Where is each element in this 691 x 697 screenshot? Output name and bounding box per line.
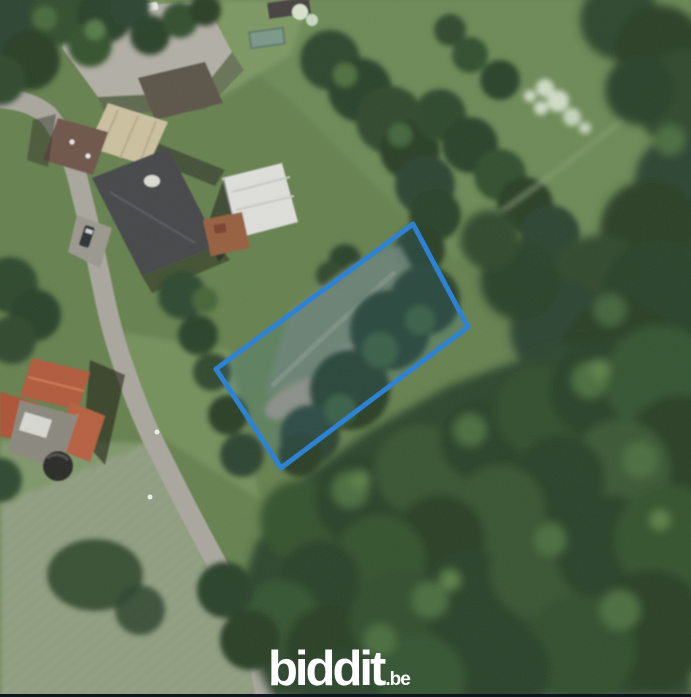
biddit-map-screenshot: biddit .be [0, 0, 691, 697]
biddit-logo-brand: biddit [268, 645, 383, 694]
biddit-logo-tld: .be [385, 670, 409, 689]
biddit-logo: biddit .be [268, 645, 410, 694]
aerial-photo [0, 0, 691, 697]
